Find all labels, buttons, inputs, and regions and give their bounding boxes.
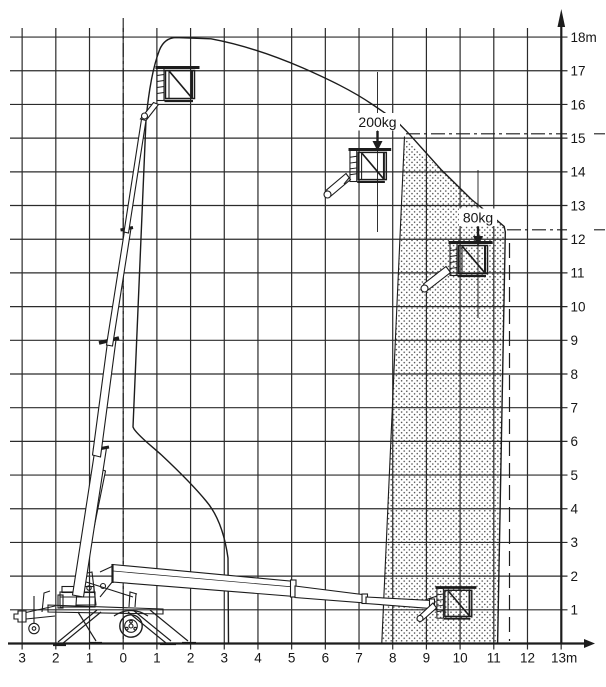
y-axis-tick-label: 15: [571, 131, 586, 146]
y-axis-tick-label: 17: [571, 64, 586, 79]
x-axis-tick-label: 8: [389, 651, 397, 666]
x-axis-tick-label: 12: [520, 651, 535, 666]
y-axis-tick-label: 11: [571, 266, 585, 281]
diagram-svg: 200kg 80kg 18m1716151413121110987654321 …: [0, 0, 606, 687]
y-axis-tick-label: 2: [571, 569, 579, 584]
x-axis-tick-label: 2: [52, 651, 60, 666]
y-axis-tick-label: 6: [571, 434, 579, 449]
x-axis-tick-label: 13m: [551, 651, 577, 666]
y-axis-tick-label: 4: [571, 502, 579, 517]
h-boom-section-2: [295, 586, 366, 603]
basket-200kg: [324, 150, 391, 199]
reference-lines: [123, 18, 605, 642]
x-axis-tick-label: 6: [322, 651, 330, 666]
x-axis-arrow-icon: [584, 639, 595, 648]
y-axis-tick-label: 10: [571, 299, 586, 314]
upper-load-label: 200kg: [358, 114, 396, 130]
y-axis-tick-label: 12: [571, 232, 586, 247]
x-axis-labels: 321012345678910111213m: [18, 651, 577, 666]
x-axis-tick-label: 11: [487, 651, 501, 666]
y-axis-arrow-icon: [558, 9, 566, 27]
y-axis-tick-label: 18m: [571, 30, 597, 45]
x-axis-tick-label: 7: [355, 651, 363, 666]
y-axis-tick-label: 13: [571, 198, 586, 213]
y-axis-tick-label: 8: [571, 367, 579, 382]
y-axis-tick-label: 3: [571, 535, 579, 550]
x-axis-tick-label: 4: [254, 651, 262, 666]
x-axis-tick-label: 0: [119, 651, 127, 666]
x-axis-tick-label: 10: [453, 651, 468, 666]
y-axis-tick-label: 9: [571, 333, 579, 348]
x-axis-tick-label: 3: [221, 651, 229, 666]
x-axis-tick-label: 5: [288, 651, 296, 666]
tow-coupler: [14, 611, 26, 622]
y-axis-labels: 18m1716151413121110987654321: [571, 30, 597, 618]
y-axis-tick-label: 7: [571, 400, 579, 415]
boom-section-2: [93, 339, 117, 458]
h-boom-section-1: [113, 565, 296, 597]
y-axis-tick-label: 1: [571, 603, 579, 618]
x-axis-tick-label: 1: [153, 651, 161, 666]
boom-section-3: [107, 228, 132, 347]
basket-top: [156, 68, 200, 102]
x-axis-tick-label: 9: [423, 651, 431, 666]
x-axis-tick-label: 1: [86, 651, 94, 666]
x-axis-tick-label: 2: [187, 651, 195, 666]
lower-load-label: 80kg: [463, 210, 493, 226]
boom-rest-post: [129, 592, 137, 607]
x-axis-tick-label: 3: [18, 651, 26, 666]
y-axis-tick-label: 14: [571, 165, 587, 180]
working-envelope-diagram: 200kg 80kg 18m1716151413121110987654321 …: [0, 0, 606, 687]
raised-boom: [73, 103, 159, 598]
y-axis-tick-label: 5: [571, 468, 579, 483]
jockey-wheel: [29, 623, 39, 633]
y-axis-tick-label: 16: [571, 97, 586, 112]
